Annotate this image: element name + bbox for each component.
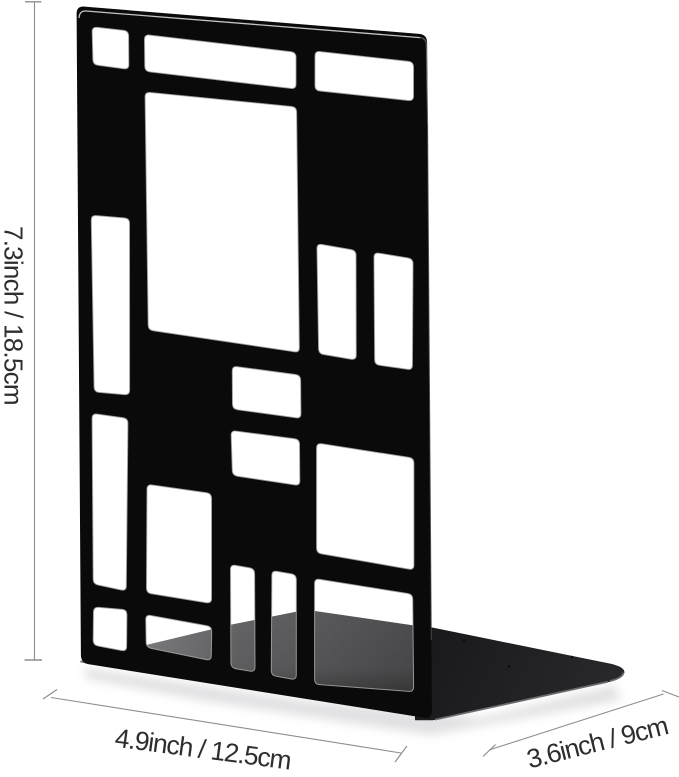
svg-text:7.3inch / 18.5cm: 7.3inch / 18.5cm bbox=[0, 226, 29, 405]
